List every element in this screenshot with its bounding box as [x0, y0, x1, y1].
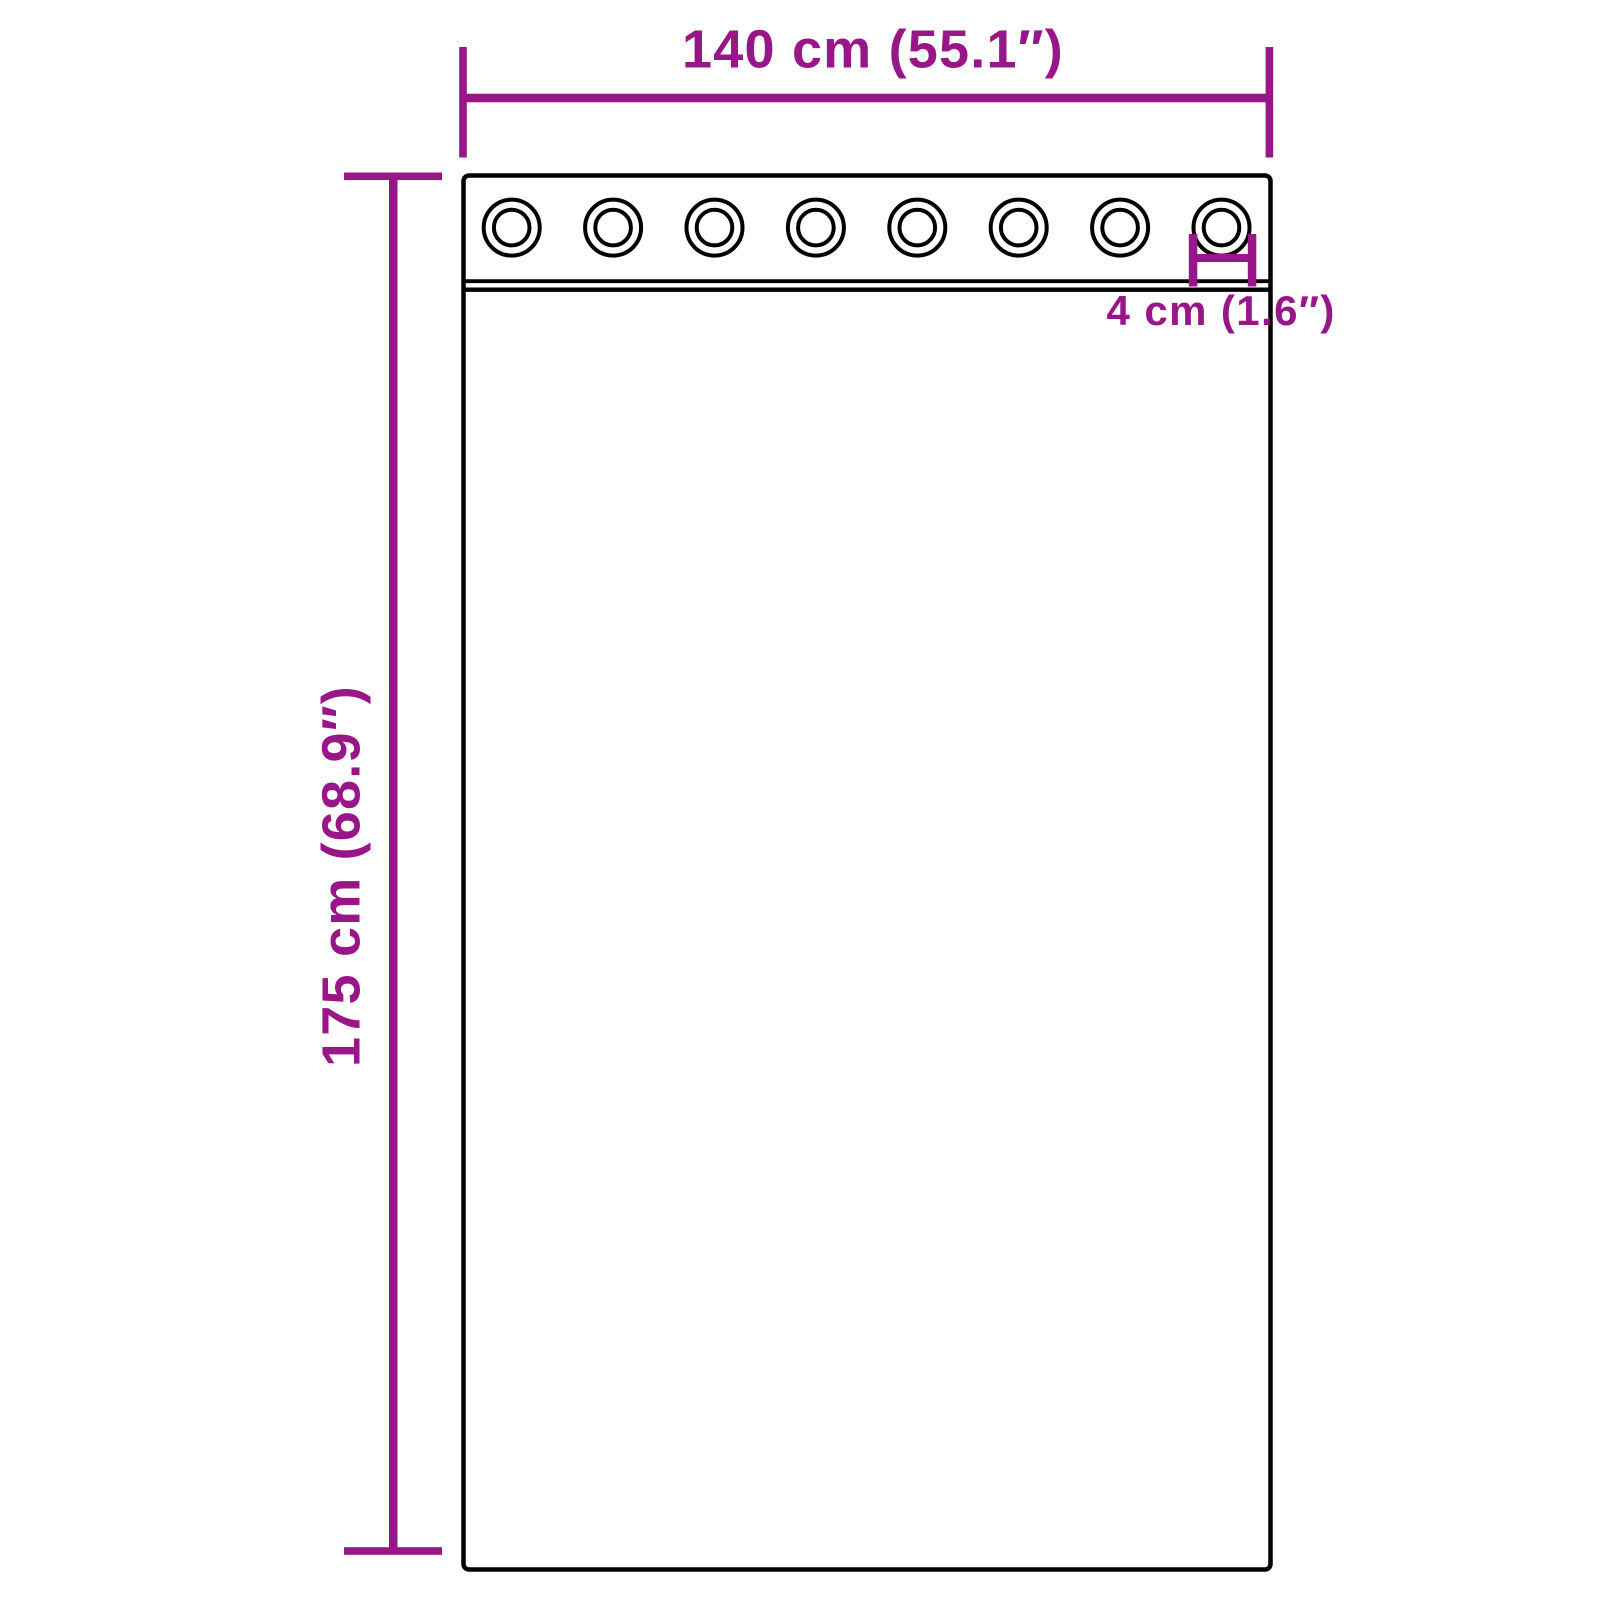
svg-text:140 cm (55.1″): 140 cm (55.1″) [682, 20, 1064, 80]
svg-text:4 cm (1.6″): 4 cm (1.6″) [1107, 287, 1336, 334]
svg-text:175 cm (68.9″): 175 cm (68.9″) [312, 685, 372, 1067]
